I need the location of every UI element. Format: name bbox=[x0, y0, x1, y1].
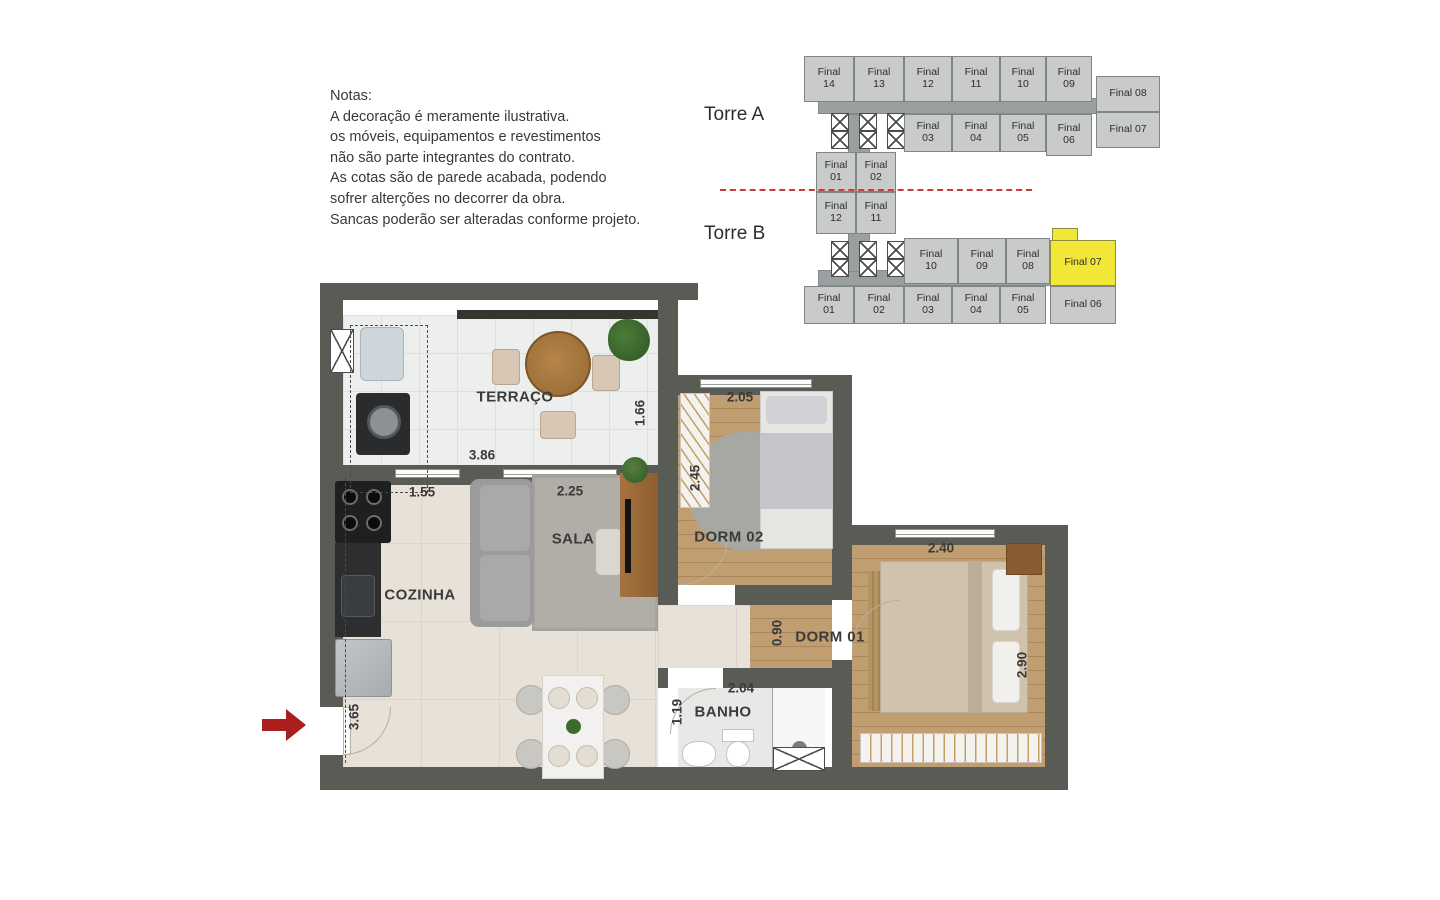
unit-label: Final 10 bbox=[914, 249, 948, 273]
wall-top bbox=[320, 283, 698, 300]
unit-label: Final 06 bbox=[1052, 123, 1086, 147]
unit-label: Final 09 bbox=[965, 249, 999, 273]
blanket-fold bbox=[968, 561, 982, 713]
notes-line: sofrer alterções no decorrer da obra. bbox=[330, 189, 660, 210]
wall-banho-top-left bbox=[658, 668, 668, 688]
dimension-dorm02-width: 2.05 bbox=[727, 390, 753, 405]
torre-b-label: Torre B bbox=[704, 223, 765, 245]
unit-cell[interactable]: Final 11 bbox=[952, 56, 1000, 102]
dimension-terraco-width: 3.86 bbox=[469, 448, 495, 463]
elevator-shaft-icon bbox=[887, 131, 905, 149]
unit-label: Final 08 bbox=[1011, 249, 1045, 273]
unit-label: Final 09 bbox=[1052, 67, 1086, 91]
room-label-banho: BANHO bbox=[695, 704, 752, 721]
dimension-dorm01-width: 2.40 bbox=[928, 541, 954, 556]
pouf bbox=[596, 529, 622, 575]
room-label-dorm02: DORM 02 bbox=[694, 529, 763, 546]
plant-icon bbox=[622, 457, 648, 483]
unit-cell[interactable]: Final 09 bbox=[958, 238, 1006, 284]
elevator-shaft-icon bbox=[831, 113, 849, 131]
elevator-shaft-icon bbox=[859, 113, 877, 131]
unit-label: Final 03 bbox=[911, 121, 945, 145]
notes: Notas: A decoração é meramente ilustrati… bbox=[330, 86, 660, 230]
notes-line: não são parte integrantes do contrato. bbox=[330, 148, 660, 169]
stove-burner bbox=[366, 515, 382, 531]
unit-cell[interactable]: Final 14 bbox=[804, 56, 854, 102]
dimension-sala-width: 2.25 bbox=[557, 484, 583, 499]
elevator-shaft-icon bbox=[859, 131, 877, 149]
terrace-chair bbox=[592, 355, 620, 391]
unit-cell[interactable]: Final 01 bbox=[816, 152, 856, 192]
unit-cell[interactable]: Final 13 bbox=[854, 56, 904, 102]
notes-line: A decoração é meramente ilustrativa. bbox=[330, 107, 660, 128]
wall-dorm01-right bbox=[1045, 525, 1068, 790]
sofa-cushion bbox=[480, 485, 530, 551]
wall-dorm02-bottom bbox=[735, 585, 832, 605]
unit-cell[interactable]: Final 02 bbox=[856, 152, 896, 192]
terrace-chair bbox=[492, 349, 520, 385]
tower-divider-line bbox=[720, 189, 1032, 191]
unit-cell[interactable]: Final 08 bbox=[1096, 76, 1160, 112]
dining-chair bbox=[600, 685, 630, 715]
elevator-shaft-icon bbox=[831, 131, 849, 149]
room-label-sala: SALA bbox=[552, 531, 594, 548]
unit-cell[interactable]: Final 10 bbox=[1000, 56, 1046, 102]
dimension-banho-depth: 1.19 bbox=[670, 699, 685, 725]
plant-icon bbox=[566, 719, 581, 734]
wall-dorm01-left-upper bbox=[832, 545, 852, 600]
unit-cell[interactable]: Final 12 bbox=[904, 56, 952, 102]
unit-label: Final 05 bbox=[1006, 121, 1040, 145]
blanket bbox=[760, 433, 833, 509]
shaft-icon bbox=[773, 747, 825, 771]
laundry-option-outline bbox=[350, 325, 428, 493]
washbasin bbox=[682, 741, 716, 767]
unit-label: Final 04 bbox=[959, 121, 993, 145]
place-setting bbox=[576, 687, 598, 709]
unit-label: Final 10 bbox=[1006, 67, 1040, 91]
wall-bottom bbox=[320, 767, 1068, 790]
highlighted-unit-cell[interactable]: Final 07 bbox=[1050, 240, 1116, 286]
unit-label: Final 08 bbox=[1109, 88, 1146, 100]
room-label-cozinha: COZINHA bbox=[384, 587, 455, 604]
notes-title: Notas: bbox=[330, 86, 660, 107]
room-label-dorm01: DORM 01 bbox=[795, 629, 864, 646]
unit-label: Final 14 bbox=[812, 67, 846, 91]
entrance-arrow-head bbox=[286, 709, 306, 741]
place-setting bbox=[548, 745, 570, 767]
dimension-entry-wall: 3.65 bbox=[347, 704, 362, 730]
unit-label: Final 12 bbox=[911, 67, 945, 91]
dimension-dorm01-depth: 2.90 bbox=[1015, 652, 1030, 678]
page: Notas: A decoração é meramente ilustrati… bbox=[0, 0, 1440, 900]
unit-label: Final 07 bbox=[1064, 257, 1101, 269]
kitchen-sink bbox=[341, 575, 375, 617]
window bbox=[895, 529, 995, 538]
unit-cell[interactable]: Final 06 bbox=[1046, 114, 1092, 156]
floor-plan: TERRAÇO COZINHA SALA DORM 02 DORM 01 BAN… bbox=[320, 283, 1070, 795]
toilet bbox=[726, 741, 750, 767]
unit-label: Final 01 bbox=[819, 160, 853, 184]
unit-label: Final 13 bbox=[862, 67, 896, 91]
pillow bbox=[992, 569, 1020, 631]
unit-label: Final 11 bbox=[859, 201, 893, 225]
dimension-terraco-depth: 1.66 bbox=[633, 400, 648, 426]
dining-chair bbox=[600, 739, 630, 769]
unit-label: Final 11 bbox=[959, 67, 993, 91]
notes-line: Sancas poderão ser alteradas conforme pr… bbox=[330, 210, 660, 231]
unit-label: Final 02 bbox=[859, 160, 893, 184]
pillow bbox=[766, 396, 827, 424]
unit-cell[interactable]: Final 09 bbox=[1046, 56, 1092, 102]
entrance-arrow-shaft bbox=[262, 719, 286, 731]
dimension-dorm02-depth: 2.45 bbox=[688, 465, 703, 491]
place-setting bbox=[548, 687, 570, 709]
notes-line: os móveis, equipamentos e revestimentos bbox=[330, 127, 660, 148]
unit-label: Final 12 bbox=[819, 201, 853, 225]
elevator-shaft-icon bbox=[887, 259, 905, 277]
dimension-cozinha-width: 1.55 bbox=[409, 485, 435, 500]
wardrobe bbox=[860, 733, 1042, 763]
elevator-shaft-icon bbox=[887, 113, 905, 131]
unit-cell[interactable]: Final 04 bbox=[952, 114, 1000, 152]
dimension-banho-width: 2.04 bbox=[728, 681, 754, 696]
unit-label: Final 07 bbox=[1109, 124, 1146, 136]
sofa-cushion bbox=[480, 555, 530, 621]
unit-cell[interactable]: Final 05 bbox=[1000, 114, 1046, 152]
torre-a-label: Torre A bbox=[704, 104, 764, 126]
round-table bbox=[525, 331, 591, 397]
plant-icon bbox=[608, 319, 650, 361]
elevator-shaft-icon bbox=[887, 241, 905, 259]
unit-cell[interactable]: Final 12 bbox=[816, 192, 856, 234]
nightstand bbox=[1006, 543, 1042, 575]
unit-cell[interactable]: Final 03 bbox=[904, 114, 952, 152]
tv bbox=[625, 499, 631, 573]
window bbox=[700, 379, 812, 388]
unit-cell[interactable]: Final 11 bbox=[856, 192, 896, 234]
unit-cell[interactable]: Final 10 bbox=[904, 238, 958, 284]
wall-dorm02-right bbox=[832, 375, 852, 545]
unit-cell[interactable]: Final 08 bbox=[1006, 238, 1050, 284]
room-label-terraco: TERRAÇO bbox=[477, 389, 554, 406]
elevator-shaft-icon bbox=[859, 259, 877, 277]
place-setting bbox=[576, 745, 598, 767]
wall-dorm02-left bbox=[658, 300, 678, 605]
terrace-railing bbox=[457, 310, 658, 319]
elevator-shaft-icon bbox=[831, 259, 849, 277]
entrance-arrow-icon bbox=[262, 709, 306, 741]
terrace-chair bbox=[540, 411, 576, 439]
elevator-shaft-icon bbox=[859, 241, 877, 259]
refrigerator bbox=[335, 639, 392, 697]
notes-line: As cotas são de parede acabada, podendo bbox=[330, 168, 660, 189]
unit-cell[interactable]: Final 07 bbox=[1096, 112, 1160, 148]
dimension-hall-width: 0.90 bbox=[770, 620, 785, 646]
elevator-shaft-icon bbox=[831, 241, 849, 259]
